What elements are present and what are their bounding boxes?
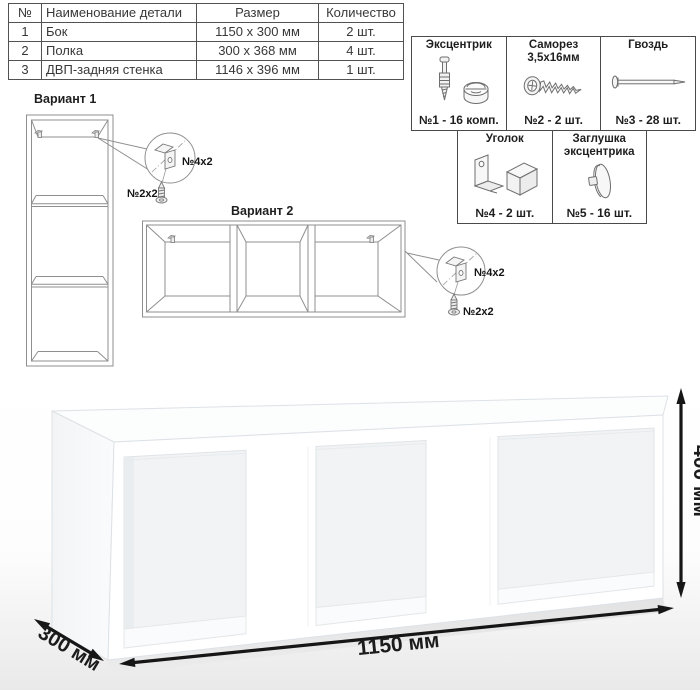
part-size: 300 x 368 мм — [197, 42, 319, 61]
assembly-instruction-sheet: № Наименование детали Размер Количество … — [0, 0, 700, 690]
part-qty: 4 шт. — [319, 42, 404, 61]
mini-bracket-icon — [168, 236, 175, 243]
hardware-title: Саморез — [529, 39, 578, 52]
hardware-title-line2: эксцентрика — [564, 146, 635, 159]
screw-detail-icon — [156, 182, 167, 203]
hardware-cell-corner-bracket: Уголок №4 - 2 шт. — [458, 131, 553, 223]
part-num: 1 — [9, 23, 42, 42]
hardware-caption: №1 - 16 комп. — [419, 113, 499, 127]
hardware-title: Заглушка — [573, 133, 626, 146]
hardware-cell-screw: Саморез 3,5х16мм №2 - 2 шт. — [507, 37, 602, 130]
part-name: Бок — [42, 23, 197, 42]
variant2-screw-label: №2х2 — [463, 306, 494, 318]
parts-table-header-row: № Наименование детали Размер Количество — [9, 4, 404, 23]
hardware-box-row1: Эксцентрик — [411, 36, 696, 131]
mini-bracket-icon — [367, 236, 374, 243]
parts-table: № Наименование детали Размер Количество … — [8, 3, 404, 80]
col-header-qty: Количество — [319, 4, 404, 23]
screw-detail-icon — [449, 294, 460, 315]
variant2-drawing: №4х2 №2х2 — [138, 218, 518, 328]
nail-icon — [608, 52, 688, 114]
variant1-title: Вариант 1 — [34, 92, 96, 106]
variant1-bracket-label: №4х2 — [182, 156, 213, 168]
hardware-title: Эксцентрик — [426, 39, 492, 52]
cam-bolt-icon — [426, 52, 492, 114]
hardware-caption: №2 - 2 шт. — [524, 113, 583, 127]
hardware-caption: №3 - 28 шт. — [615, 113, 681, 127]
variant1-screw-label: №2х2 — [127, 188, 158, 200]
hardware-title: Уголок — [486, 133, 524, 146]
hardware-cell-cam-bolt: Эксцентрик — [412, 37, 507, 130]
hardware-cell-nail: Гвоздь №3 - 28 шт. — [601, 37, 695, 130]
part-name: Полка — [42, 42, 197, 61]
mini-bracket-icon — [92, 131, 99, 138]
part-num: 3 — [9, 61, 42, 80]
screw-icon — [519, 64, 589, 113]
table-row: 3 ДВП-задняя стенка 1146 x 396 мм 1 шт. — [9, 61, 404, 80]
hardware-cell-cam-cap: Заглушка эксцентрика №5 - 16 шт. — [553, 131, 647, 223]
corner-bracket-icon — [467, 146, 543, 207]
part-size: 1146 x 396 мм — [197, 61, 319, 80]
part-name: ДВП-задняя стенка — [42, 61, 197, 80]
part-qty: 1 шт. — [319, 61, 404, 80]
col-header-name: Наименование детали — [42, 4, 197, 23]
hardware-box-row2: Уголок №4 - 2 шт. Заглушка — [457, 130, 647, 224]
hardware-caption: №5 - 16 шт. — [566, 206, 632, 220]
table-row: 1 Бок 1150 x 300 мм 2 шт. — [9, 23, 404, 42]
hardware-title-line2: 3,5х16мм — [527, 52, 579, 65]
table-row: 2 Полка 300 x 368 мм 4 шт. — [9, 42, 404, 61]
part-num: 2 — [9, 42, 42, 61]
part-size: 1150 x 300 мм — [197, 23, 319, 42]
hardware-title: Гвоздь — [628, 39, 668, 52]
part-qty: 2 шт. — [319, 23, 404, 42]
height-dimension-label: 400 мм — [689, 445, 700, 517]
cam-cap-icon — [577, 158, 621, 206]
variant2-bracket-label: №4х2 — [474, 267, 505, 279]
col-header-size: Размер — [197, 4, 319, 23]
shelf-3d-render: 1150 мм 300 мм 400 мм — [0, 378, 700, 690]
variant2-title: Вариант 2 — [231, 204, 293, 218]
col-header-num: № — [9, 4, 42, 23]
